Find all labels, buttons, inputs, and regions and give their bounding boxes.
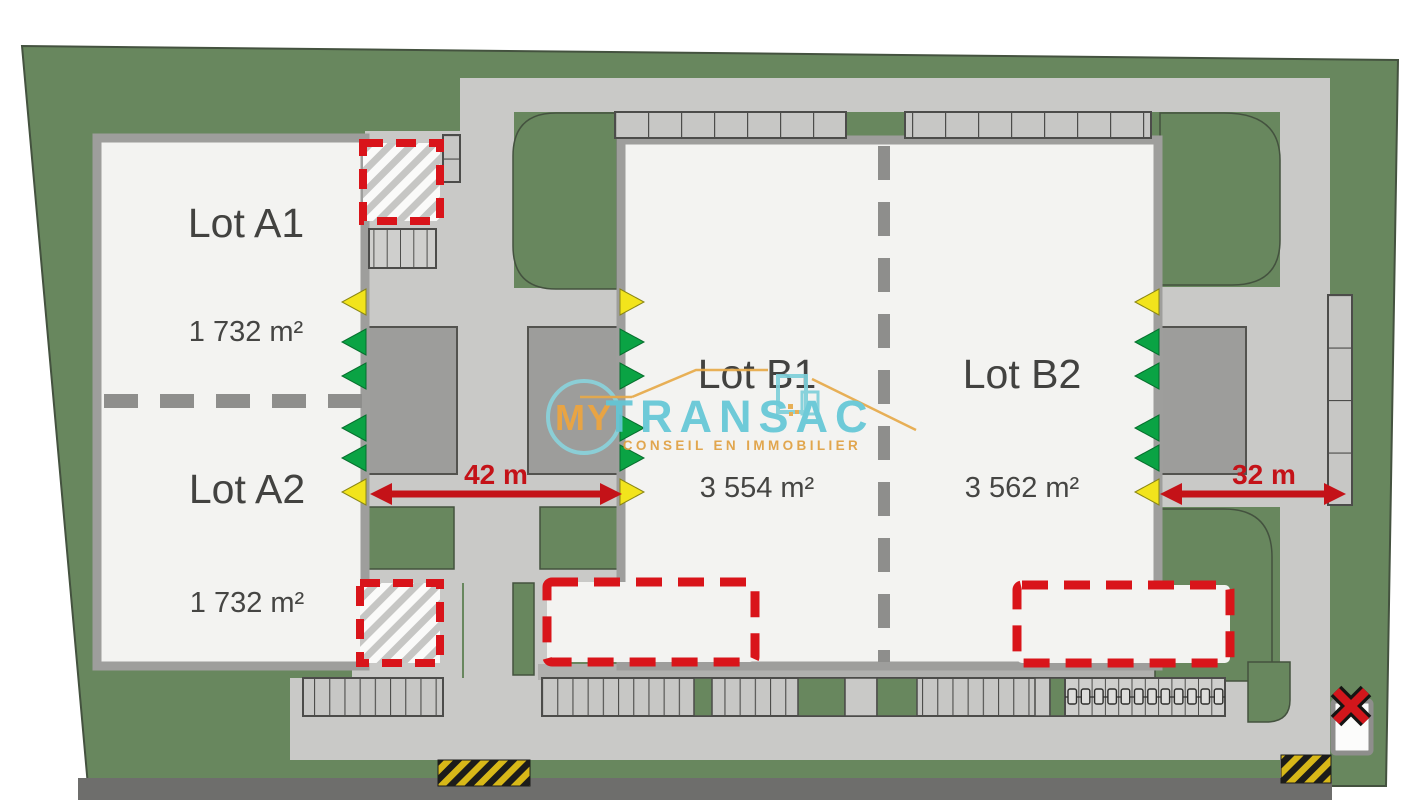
lot-b2-area: 3 562 m² <box>965 472 1080 504</box>
blank-cell <box>845 678 877 716</box>
ev-charging-spaces <box>1065 678 1225 716</box>
green-cell <box>798 678 845 716</box>
road-top-band <box>460 78 1330 112</box>
island-exit-sliver <box>513 583 534 675</box>
no-access-marker <box>1333 691 1371 753</box>
hatched-square-bottom <box>360 583 440 663</box>
parking-row-top-b2 <box>905 112 1151 138</box>
island-top-b1 <box>513 113 617 289</box>
green-cell <box>1050 678 1065 716</box>
public-road-bottom <box>78 778 1332 800</box>
island-courtyard-left-1 <box>368 507 454 569</box>
road-left-vertical <box>460 78 514 292</box>
watermark-brand: TRANSAC <box>606 391 875 442</box>
site-plan-svg: 42 m 32 m Lot A1 1 732 m² Lot A2 1 732 m… <box>0 0 1422 800</box>
parking-row-top-b1 <box>615 112 846 138</box>
lot-a2-title: Lot A2 <box>189 466 305 512</box>
hazard-strip-right <box>1281 755 1331 783</box>
dashed-rect-b2 <box>1017 585 1230 663</box>
island-bottom-right-patch <box>1248 662 1290 722</box>
lot-a2-area: 1 732 m² <box>190 587 305 619</box>
dimension-label-32m: 32 m <box>1232 459 1296 490</box>
site-plan-page: 42 m 32 m Lot A1 1 732 m² Lot A2 1 732 m… <box>0 0 1422 800</box>
hazard-strip-left <box>438 760 530 786</box>
lot-b1-area: 3 554 m² <box>700 472 815 504</box>
watermark-tagline: CONSEIL EN IMMOBILIER <box>623 438 861 453</box>
truck-court-b2 <box>1158 327 1246 474</box>
lot-b2-title: Lot B2 <box>963 351 1082 397</box>
blank-cell <box>1035 678 1050 716</box>
lot-a1-area: 1 732 m² <box>189 316 304 348</box>
parking-row-left-small <box>369 229 436 268</box>
parking-stack-right <box>1328 295 1352 505</box>
dimension-label-42m: 42 m <box>464 459 528 490</box>
dashed-rect-b1 <box>547 582 755 662</box>
parking-row-bottom-left <box>303 678 443 716</box>
watermark-prefix: MY <box>555 397 613 438</box>
no-access-x-icon <box>1336 691 1366 721</box>
green-cell <box>877 678 917 716</box>
lot-a1-title: Lot A1 <box>188 200 304 246</box>
hatched-square-top <box>363 143 440 221</box>
island-top-b2 <box>1160 113 1280 285</box>
parking-stack-left <box>443 135 460 182</box>
green-cell <box>694 678 712 716</box>
truck-court-a <box>368 327 457 474</box>
island-courtyard-left-2 <box>540 507 622 569</box>
